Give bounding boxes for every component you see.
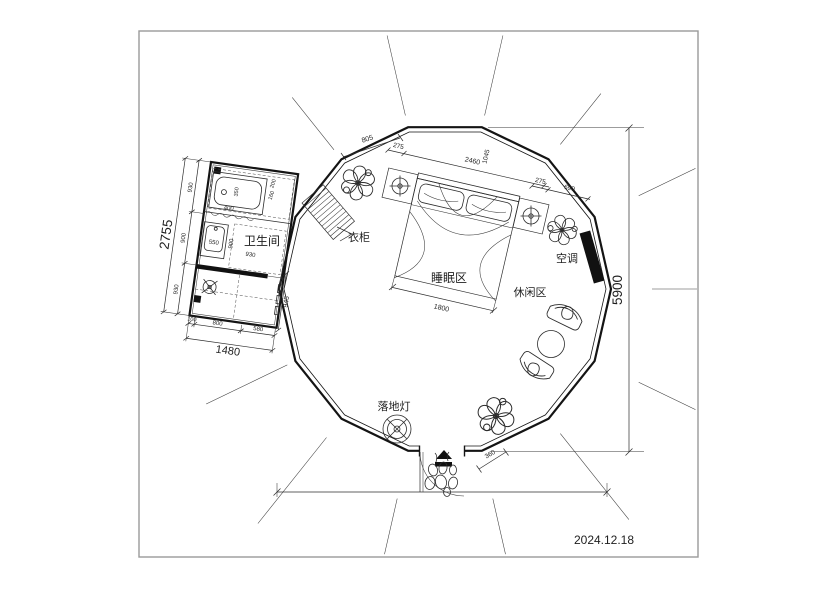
- dim-bathroom-580: 580: [253, 326, 264, 333]
- dim-shelf-200: 200: [269, 178, 278, 189]
- pillow-left: [417, 183, 465, 212]
- ac-label: 空调: [556, 251, 578, 265]
- plant-icon: [341, 164, 375, 203]
- tub-chair: [546, 299, 586, 331]
- svg-text:805: 805: [361, 134, 374, 144]
- bathroom-label: 卫生间: [244, 234, 280, 248]
- svg-text:275: 275: [392, 142, 405, 151]
- dim-bathroom-930a: 930: [188, 181, 195, 192]
- pillow-right: [465, 194, 513, 223]
- table-lamp-icon: [521, 206, 542, 227]
- dim-bathroom-2755: 2755: [156, 219, 175, 251]
- dim-bathroom-930b: 930: [173, 283, 180, 294]
- svg-text:2460: 2460: [464, 156, 481, 166]
- date-text: 2024.12.18: [574, 533, 634, 547]
- svg-text:275: 275: [534, 177, 547, 186]
- dim-bathroom-945: 945: [282, 296, 291, 309]
- tub-chair: [516, 350, 556, 385]
- dim-bathroom-100: 100: [187, 316, 197, 323]
- dim-inner-930: 930: [245, 252, 256, 259]
- floorplan-drawing: 100 800 580 1480 930 900 930 2755 945 55…: [0, 0, 837, 592]
- floor-lamp: [383, 415, 411, 443]
- bathroom-block: 100 800 580 1480 930 900 930 2755 945 55…: [143, 154, 309, 365]
- dim-shelf-160: 160: [268, 190, 277, 201]
- air-conditioner-unit: [580, 230, 605, 283]
- dim-tub-400: 400: [223, 205, 234, 212]
- dim-tub-350: 350: [233, 187, 240, 197]
- plant-icon: [471, 390, 520, 442]
- dim-basin-550: 550: [208, 240, 219, 247]
- dim-inner-900: 900: [228, 238, 235, 249]
- dim-bathroom-1480: 1480: [215, 344, 241, 359]
- round-table: [538, 331, 565, 358]
- floorplan-page: 100 800 580 1480 930 900 930 2755 945 55…: [0, 0, 837, 592]
- leisure-area-label: 休闲区: [514, 285, 547, 299]
- dim-bathroom-900: 900: [180, 232, 187, 243]
- svg-text:1800: 1800: [433, 303, 450, 313]
- floor-drain-icon: [202, 279, 218, 295]
- dim-door-360: 360: [477, 449, 509, 473]
- floor-lamp-label: 落地灯: [378, 400, 411, 413]
- svg-text:5900: 5900: [610, 275, 625, 305]
- dim-top-chains: 805 275 2460 1045 275 690: [341, 134, 591, 201]
- sleeping-area-label: 睡眠区: [431, 271, 467, 285]
- table-lamp-icon: [390, 176, 411, 197]
- svg-text:1045: 1045: [482, 148, 492, 164]
- dim-bathroom-800: 800: [212, 320, 223, 327]
- wardrobe-label: 衣柜: [348, 230, 370, 244]
- svg-text:690: 690: [563, 184, 576, 193]
